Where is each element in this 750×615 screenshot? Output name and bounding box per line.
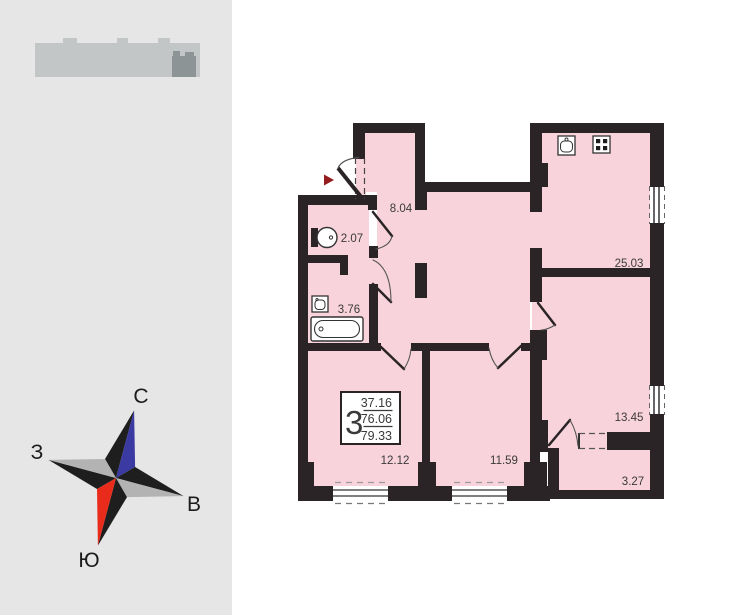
apartment-area-total: 79.33 xyxy=(361,429,392,443)
bedroom-window-right xyxy=(650,385,665,415)
area-label-balcony: 3.27 xyxy=(622,476,644,488)
apartment-area-main: 76.06 xyxy=(361,412,392,426)
apartment-info-box: 3 37.16 76.06 79.33 xyxy=(341,392,400,444)
kitchen-sink-icon xyxy=(558,136,575,155)
bathtub-icon xyxy=(311,317,363,341)
toilet-icon xyxy=(311,228,337,248)
floorplan-page: С З В Ю xyxy=(0,0,750,615)
area-label-hall: 8.04 xyxy=(390,203,413,215)
bath-sink-icon xyxy=(312,296,328,312)
stove-icon xyxy=(593,136,610,153)
area-label-kitchen-living: 25.03 xyxy=(615,258,644,270)
area-label-wc: 2.07 xyxy=(341,233,363,245)
area-label-bath: 3.76 xyxy=(338,304,360,316)
entrance-marker-icon xyxy=(324,175,334,186)
area-label-room-b: 11.59 xyxy=(490,455,518,467)
area-label-room-c: 13.45 xyxy=(615,412,644,424)
kitchen-window xyxy=(650,186,665,224)
area-label-room-a: 12.12 xyxy=(381,455,410,467)
apartment-area-living: 37.16 xyxy=(361,396,392,410)
floor-plan: 8.04 2.07 3.76 25.03 12.12 11.59 13.45 3… xyxy=(0,0,750,615)
